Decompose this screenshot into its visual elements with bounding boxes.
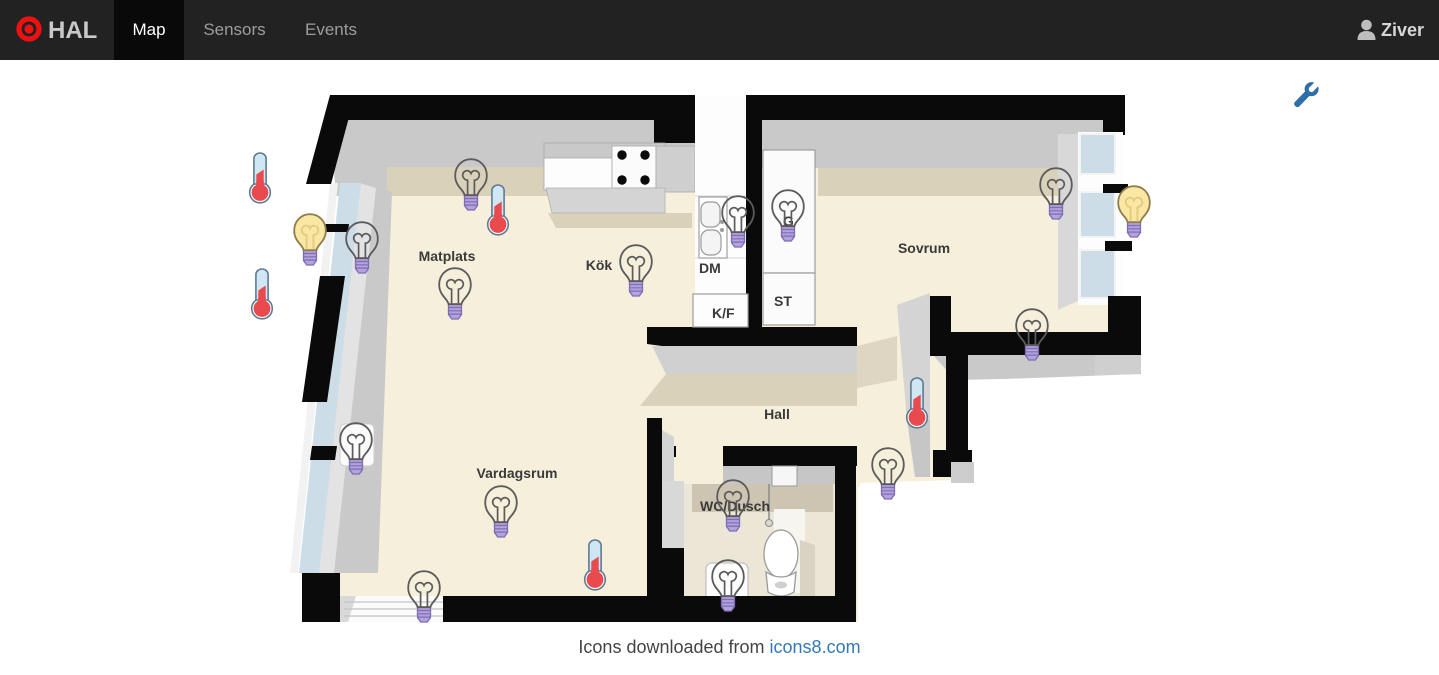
svg-text:K/F: K/F xyxy=(712,305,735,321)
svg-text:Kök: Kök xyxy=(586,257,613,273)
svg-text:Vardagsrum: Vardagsrum xyxy=(477,465,558,481)
svg-text:ST: ST xyxy=(774,293,792,309)
svg-text:WC/Dusch: WC/Dusch xyxy=(700,498,770,514)
svg-text:DM: DM xyxy=(699,260,721,276)
svg-text:Sovrum: Sovrum xyxy=(898,240,950,256)
svg-text:Hall: Hall xyxy=(764,406,790,422)
svg-text:Matplats: Matplats xyxy=(419,248,476,264)
